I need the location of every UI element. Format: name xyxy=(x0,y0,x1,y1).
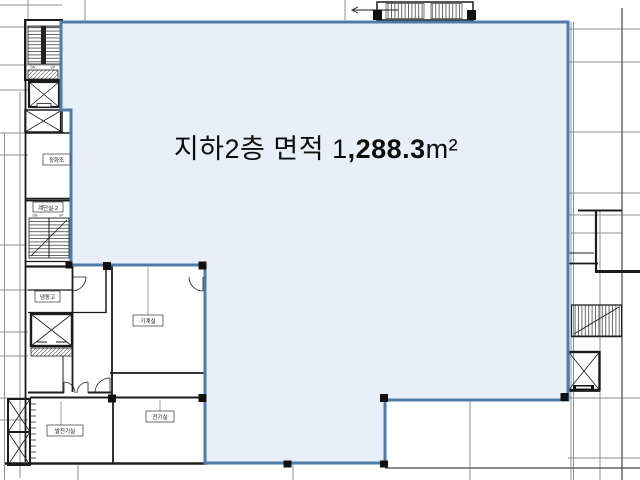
area-annotation: 지하2층 면적 1,288.3m² xyxy=(148,132,484,166)
stair-mark-up: UP xyxy=(59,214,64,218)
floorplan-drawing: 정화조 계단실-2 DN UP DN UP 냉동고 기계실 발전기실 전기실 xyxy=(0,0,640,480)
stair-mark-dn-upper: DN xyxy=(31,66,36,70)
area-annotation-prefix: 지하2층 면적 1 xyxy=(174,134,348,164)
room-label-septic: 정화조 xyxy=(49,157,64,164)
room-label-generator: 발전기실 xyxy=(55,427,75,435)
door-arc xyxy=(95,378,110,393)
door-arc xyxy=(189,277,203,291)
shaft-x-brace xyxy=(25,110,62,132)
floorplan-canvas: 정화조 계단실-2 DN UP DN UP 냉동고 기계실 발전기실 전기실 지… xyxy=(0,0,640,480)
door-arc xyxy=(77,382,88,393)
stairwell-upper xyxy=(25,20,62,80)
room-label-stair2: 계단실-2 xyxy=(38,204,58,212)
stairwell-right xyxy=(571,305,622,337)
room-label-freezer: 냉동고 xyxy=(40,293,55,301)
room-label-electrical: 전기실 xyxy=(152,413,167,421)
top-stair-block xyxy=(352,2,473,20)
area-annotation-unit: m² xyxy=(426,134,458,164)
right-wing-structure xyxy=(568,210,640,391)
area-annotation-value: ,288.3 xyxy=(348,134,426,164)
elevator-upper xyxy=(29,82,59,107)
stair-mark-up-upper: UP xyxy=(51,66,56,70)
room-label-machine: 기계실 xyxy=(140,317,155,325)
elevator-mid xyxy=(31,314,72,356)
stair-mark-dn: DN xyxy=(33,214,38,218)
shear-wall-boxes xyxy=(8,399,36,465)
door-arc xyxy=(72,277,86,291)
